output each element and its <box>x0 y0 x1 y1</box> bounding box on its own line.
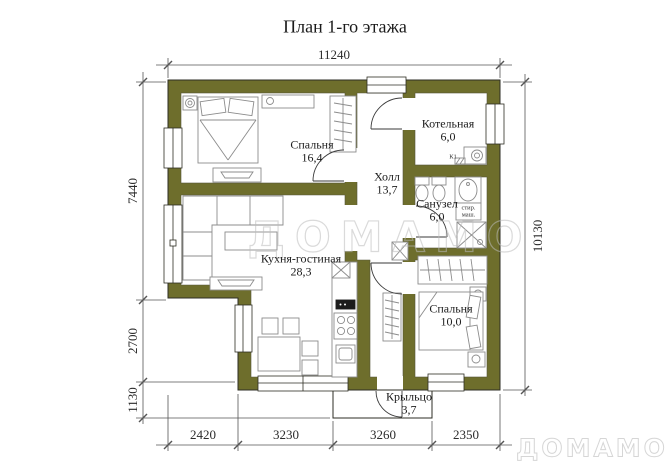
room-area: 6,0 <box>416 211 458 224</box>
room-label-bedroom2: Спальня 10,0 <box>429 303 472 330</box>
room-area: 28,3 <box>261 266 341 279</box>
room-name: Спальня <box>429 303 472 316</box>
room-area: 16,4 <box>290 152 333 165</box>
room-area: 10,0 <box>429 316 472 329</box>
window-kitchen-left <box>164 205 182 283</box>
room-name: Кухня-гостиная <box>261 253 341 266</box>
dim-bottom-4: 2350 <box>453 427 479 443</box>
dim-left-lower: 1130 <box>125 358 141 442</box>
room-name: Холл <box>374 171 400 184</box>
washing-machine-label: стир. маш. <box>461 204 475 219</box>
furniture-bedroom2-nightstand-bottom <box>468 352 485 367</box>
window-kitchen-bottom <box>258 376 348 391</box>
dim-top: 11240 <box>318 47 350 63</box>
window-hall-top <box>367 77 406 93</box>
room-area: 6,0 <box>422 131 475 144</box>
room-name: Котельная <box>422 118 475 131</box>
dim-bottom-1: 2420 <box>190 427 216 443</box>
room-area: 13,7 <box>374 184 400 197</box>
room-name: Спальня <box>290 139 333 152</box>
furniture-bedroom1-stool <box>183 96 197 110</box>
boiler-unit-label: К1 <box>449 153 457 160</box>
furniture-hall-wardrobe <box>383 293 401 341</box>
window-bedroom1-left <box>164 128 182 168</box>
furniture-bedroom1-wardrobe <box>330 96 356 152</box>
furniture-bedroom1-tv-stand <box>213 168 261 182</box>
room-label-bedroom1: Спальня 16,4 <box>290 139 333 166</box>
room-label-hall: Холл 13,7 <box>374 171 400 198</box>
page-title: План 1-го этажа <box>283 17 407 38</box>
furniture-kitchen-tv-stand <box>210 277 262 290</box>
room-name: Санузел <box>416 198 458 211</box>
dim-left-upper: 7440 <box>125 149 141 233</box>
room-label-boiler: Котельная 6,0 <box>422 118 475 145</box>
window-boiler-right <box>486 104 504 144</box>
window-bedroom2-bottom <box>428 374 464 391</box>
watermark-corner: ДОМАМО <box>516 434 665 463</box>
room-label-kitchen-living: Кухня-гостиная 28,3 <box>261 253 341 280</box>
window-kitchen-jog <box>235 305 252 352</box>
room-name: Крыльцо <box>386 391 432 404</box>
dim-right: 10130 <box>530 194 546 278</box>
dim-bottom-2: 3230 <box>273 427 299 443</box>
room-label-porch: Крыльцо 3,7 <box>386 391 432 418</box>
furniture-bedroom1-dresser <box>262 95 314 108</box>
floor-plan-page: ДОМАМО ДОМАМО План 1-го этажа Спальня 16… <box>0 0 665 470</box>
room-label-bathroom: Санузел 6,0 <box>416 198 458 225</box>
furniture-bathroom-basin <box>455 177 481 203</box>
dim-bottom-3: 3260 <box>370 427 396 443</box>
room-area: 3,7 <box>386 404 432 417</box>
furniture-bedroom1-bed <box>198 97 258 163</box>
